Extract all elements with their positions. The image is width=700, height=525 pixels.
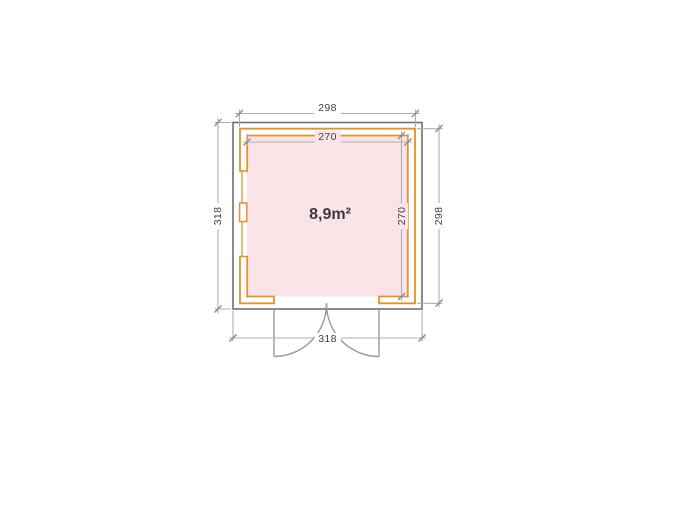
- dim-label-right-outer: 298: [433, 202, 445, 228]
- floor-area-label: 8,9m²: [309, 206, 351, 224]
- dim-label-top-outer: 298: [314, 102, 340, 114]
- floor-plan-drawing: [0, 0, 700, 525]
- door-swing-arc-right: [327, 304, 380, 357]
- floor-plan-canvas: 298 270 318 270 298 318 8,9m²: [0, 0, 700, 525]
- dim-label-top-interior: 270: [314, 131, 340, 143]
- dim-label-bottom-overall: 318: [314, 333, 340, 345]
- dim-label-right-interior: 270: [396, 202, 408, 228]
- window-mullion-block: [240, 203, 247, 222]
- double-door: [274, 303, 379, 357]
- dim-label-left-overall: 318: [212, 202, 224, 228]
- door-swing-arc-left: [274, 304, 327, 357]
